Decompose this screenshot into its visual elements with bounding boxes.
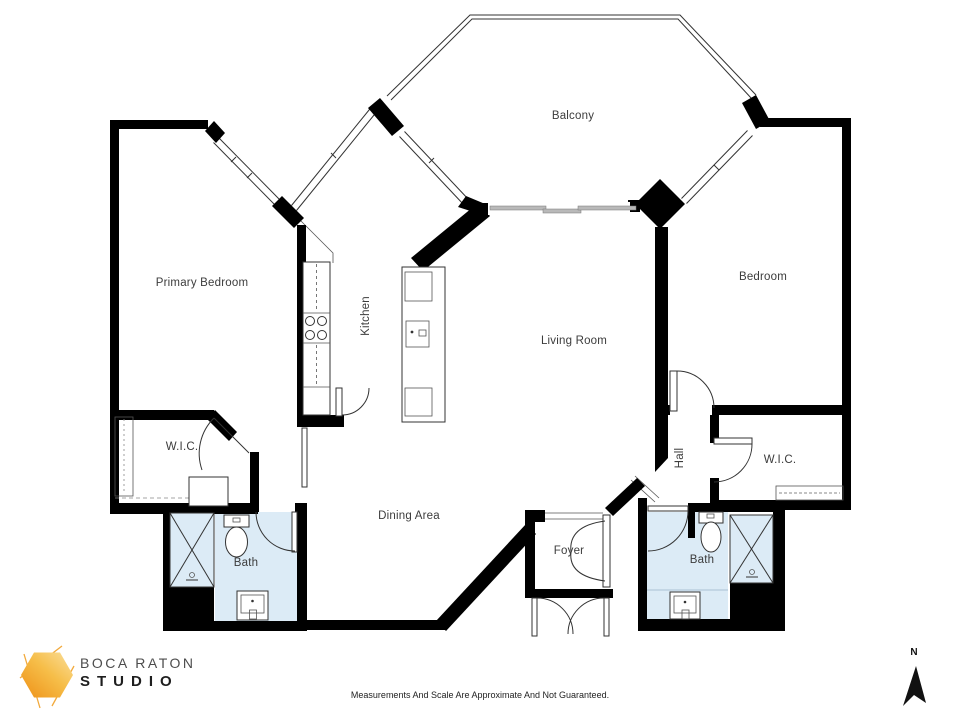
window-primary-bedroom [213,137,281,206]
room-label-living-room: Living Room [541,335,607,347]
north-arrow-icon [893,645,938,715]
toilet-right [699,512,723,552]
room-label-kitchen: Kitchen [360,296,372,336]
closet-wic-left [115,417,228,506]
room-label-balcony: Balcony [552,110,594,122]
disclaimer-text: Measurements And Scale Are Approximate A… [351,690,609,700]
sliding-door [488,202,636,215]
door-entry-double [532,598,609,636]
logo: BOCA RATON STUDIO [14,640,234,710]
sink-left [237,591,268,620]
room-label-foyer: Foyer [554,545,584,557]
door-wic-right [714,438,752,482]
north-compass: N [893,645,938,715]
logo-line2: STUDIO [80,673,179,690]
room-label-dining-area: Dining Area [378,510,440,522]
shower-right [730,515,773,583]
logo-line1: BOCA RATON [80,655,196,671]
suite-opening-frame [302,428,307,487]
room-label-primary-bedroom: Primary Bedroom [156,277,248,289]
room-label-bath-right: Bath [690,554,714,566]
sink-right [670,592,700,619]
shower-left [170,513,214,587]
closet-wic-right [776,486,843,500]
kitchen-island [402,267,445,422]
room-label-wic-right: W.I.C. [764,454,797,466]
door-kitchen [336,388,369,416]
door-bedroom [670,371,714,411]
window-bedroom [681,130,753,204]
window-balcony-left [291,104,379,211]
kitchen-inner-wall-lines [297,217,659,519]
room-label-bath-left: Bath [234,557,258,569]
room-label-bedroom: Bedroom [739,271,787,283]
balcony-railing [387,15,756,100]
floorplan-canvas: Balcony Primary Bedroom Kitchen Living R… [0,0,960,720]
logo-hexagon-icon [14,640,80,710]
room-label-hall: Hall [674,448,686,469]
toilet-left [224,515,249,557]
floorplan-drawing [0,0,960,720]
room-label-wic-left: W.I.C. [166,441,199,453]
window-kitchen [399,132,470,207]
